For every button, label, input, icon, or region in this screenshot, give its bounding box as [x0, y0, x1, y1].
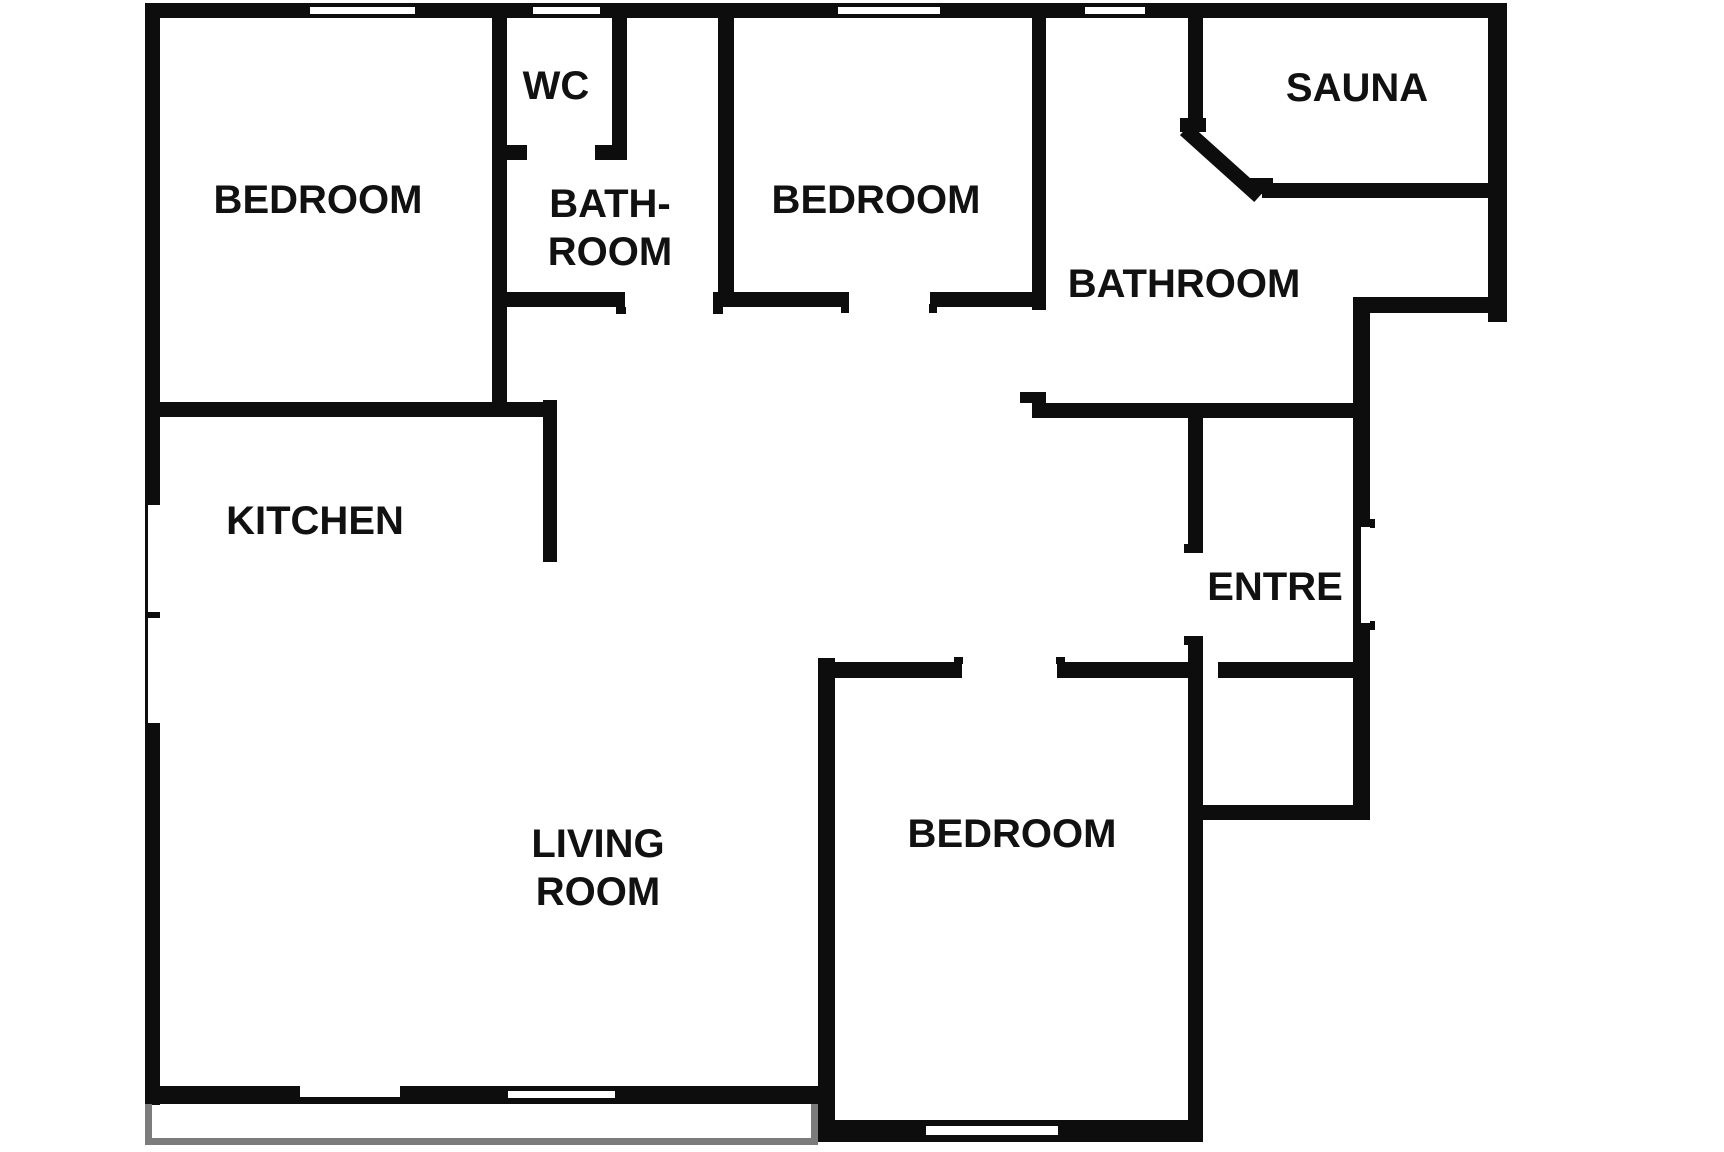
floor-plan: BEDROOMWCBATH- ROOMBEDROOMSAUNABATHROOMK…: [0, 0, 1724, 1152]
room-label-bedroom-2: BEDROOM: [772, 176, 981, 224]
bathroom-small-door-jamb-left: [616, 307, 626, 314]
room-label-entre: ENTRE: [1207, 563, 1343, 611]
room-label-wc: WC: [523, 62, 590, 110]
closet-bottom-wall: [1188, 805, 1370, 820]
kitchen-top-wall: [145, 402, 557, 417]
livingroom-bottom-wall: [145, 1086, 835, 1104]
room-label-bath-room: BATH- ROOM: [548, 180, 672, 276]
bedroom3-top-wall-a: [818, 662, 962, 678]
balcony-door-notch: [300, 1086, 400, 1097]
entre-door-jamb-top: [1184, 544, 1203, 553]
bedroom2-door-jamb-right: [929, 304, 937, 313]
window-left-kitchen-b: [148, 618, 160, 723]
outer-right-wall: [1488, 3, 1507, 322]
bedroom1-right-wall: [492, 18, 507, 407]
window-top-bedroom1: [310, 7, 415, 14]
wc-right-wall: [612, 18, 627, 160]
entre-left-wall-upper: [1188, 415, 1203, 553]
room-label-living-room: LIVING ROOM: [531, 820, 664, 916]
window-bottom-living: [508, 1091, 615, 1098]
balcony-bottom-edge: [145, 1138, 818, 1145]
hall-top-wall-b: [713, 292, 849, 307]
room-label-bedroom-1: BEDROOM: [214, 176, 423, 224]
room-label-bedroom-3: BEDROOM: [908, 810, 1117, 858]
hall-top-wall-c: [930, 292, 1046, 307]
bedroom2-right-wall-upper: [1032, 18, 1046, 310]
window-top-wc: [533, 7, 600, 14]
room-label-kitchen: KITCHEN: [226, 497, 404, 545]
outer-step-wall: [1353, 297, 1507, 313]
sauna-left-wall: [1188, 18, 1203, 128]
window-top-bathroom: [1085, 7, 1145, 14]
window-top-bedroom2: [838, 7, 940, 14]
bedroom2-door-jamb-left: [841, 304, 849, 313]
sauna-diagonal-wall: [1180, 124, 1264, 202]
window-bottom-bedroom3: [926, 1126, 1058, 1135]
bathroom-small-door-jamb-right: [713, 307, 723, 314]
room-label-bathroom: BATHROOM: [1068, 260, 1301, 308]
livingroom-bedroom3-divider: [818, 658, 835, 1142]
bathroom-door-jamb: [1020, 392, 1032, 403]
bedroom3-door-jamb-left: [954, 657, 963, 664]
balcony-right-edge: [811, 1104, 818, 1145]
bedroom3-top-wall-b: [1057, 662, 1203, 678]
bedroom3-door-jamb-right: [1056, 657, 1065, 664]
hall-top-wall-a: [492, 292, 625, 307]
sauna-bottom-wall: [1262, 183, 1488, 198]
kitchen-right-wall: [543, 400, 557, 562]
wc-bottom-wall-right: [595, 145, 627, 160]
entrance-door-notch: [1361, 527, 1370, 623]
entre-door-jamb-bottom: [1184, 636, 1203, 645]
bedroom2-left-wall: [718, 18, 734, 307]
entre-bottom-wall: [1218, 662, 1370, 678]
wc-bottom-wall-left: [492, 145, 527, 160]
entre-left-wall-lower: [1188, 637, 1203, 1142]
window-left-kitchen-a: [148, 505, 160, 612]
room-label-sauna: SAUNA: [1286, 64, 1428, 112]
